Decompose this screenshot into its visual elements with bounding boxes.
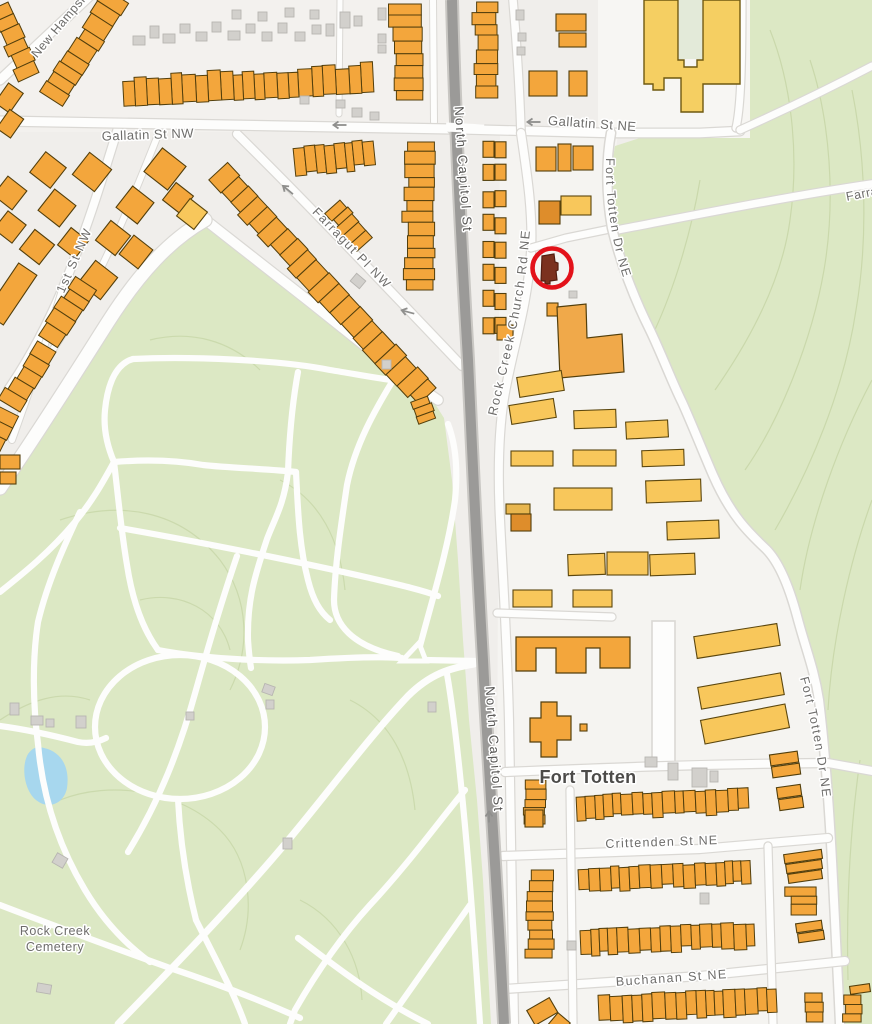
- svg-text:Cemetery: Cemetery: [26, 940, 84, 954]
- svg-text:Fort Totten: Fort Totten: [540, 767, 637, 787]
- svg-text:Rock Creek: Rock Creek: [20, 924, 91, 938]
